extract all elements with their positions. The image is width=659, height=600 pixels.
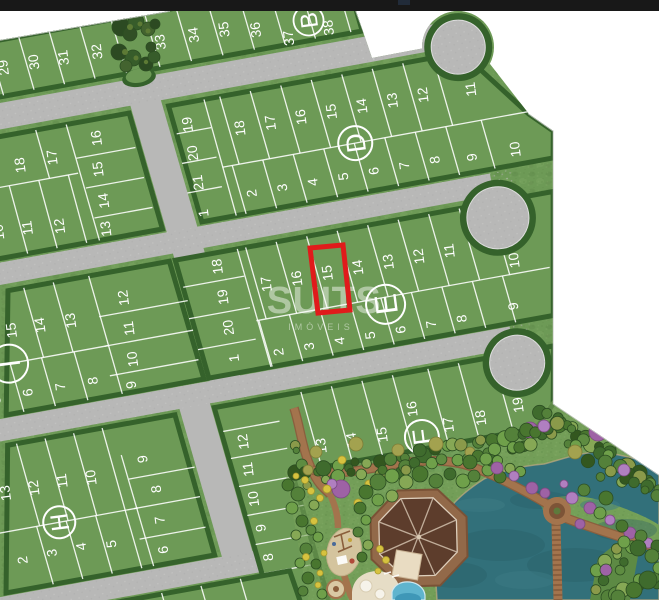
svg-text:14: 14 [349,259,367,277]
svg-text:12: 12 [414,86,432,104]
svg-text:17: 17 [439,416,457,434]
svg-text:36: 36 [246,21,264,39]
svg-text:12: 12 [114,289,132,307]
svg-text:14: 14 [31,316,49,334]
svg-text:13: 13 [97,220,115,238]
svg-text:19: 19 [214,288,232,306]
svg-text:13: 13 [0,484,14,502]
svg-text:11: 11 [53,472,71,489]
svg-text:13: 13 [383,92,401,110]
svg-text:15: 15 [89,160,107,178]
svg-text:13: 13 [379,253,397,271]
svg-text:12: 12 [410,247,428,265]
svg-text:20: 20 [219,319,237,337]
svg-text:16: 16 [403,400,421,418]
svg-text:34: 34 [184,26,202,44]
svg-text:15: 15 [373,426,391,444]
svg-text:19: 19 [178,116,196,134]
svg-text:10: 10 [506,140,524,158]
svg-text:12: 12 [234,433,252,451]
svg-text:IMÓVEIS: IMÓVEIS [288,322,354,332]
svg-text:29: 29 [0,59,12,77]
svg-text:15: 15 [322,103,340,121]
svg-text:11: 11 [120,320,138,337]
svg-text:19: 19 [509,396,527,414]
svg-text:16: 16 [87,129,105,147]
svg-text:21: 21 [189,174,207,192]
svg-text:14: 14 [353,97,371,115]
svg-text:B: B [295,11,324,30]
svg-text:17: 17 [43,148,61,166]
svg-text:37: 37 [279,29,297,47]
svg-text:11: 11 [239,461,257,478]
svg-text:20: 20 [183,144,201,162]
svg-text:18: 18 [11,156,29,174]
svg-text:D: D [340,131,372,154]
svg-text:14: 14 [95,192,113,210]
svg-text:11: 11 [18,220,36,237]
svg-text:18: 18 [208,258,226,276]
svg-text:12: 12 [50,217,68,235]
svg-text:13: 13 [61,312,79,330]
svg-text:10: 10 [123,350,141,368]
svg-text:11: 11 [462,81,480,98]
svg-text:31: 31 [54,49,72,67]
svg-text:10: 10 [244,490,262,508]
svg-text:12: 12 [25,479,43,497]
svg-text:H: H [45,511,75,532]
svg-text:16: 16 [292,108,310,126]
svg-text:18: 18 [231,119,249,137]
svg-text:32: 32 [88,43,106,61]
svg-text:15: 15 [2,322,20,340]
svg-text:18: 18 [472,409,490,427]
svg-text:30: 30 [25,53,43,71]
svg-text:11: 11 [440,242,458,259]
svg-text:35: 35 [215,21,233,39]
svg-text:SUITS: SUITS [267,280,381,322]
svg-text:10: 10 [82,469,100,487]
svg-text:17: 17 [261,114,279,132]
